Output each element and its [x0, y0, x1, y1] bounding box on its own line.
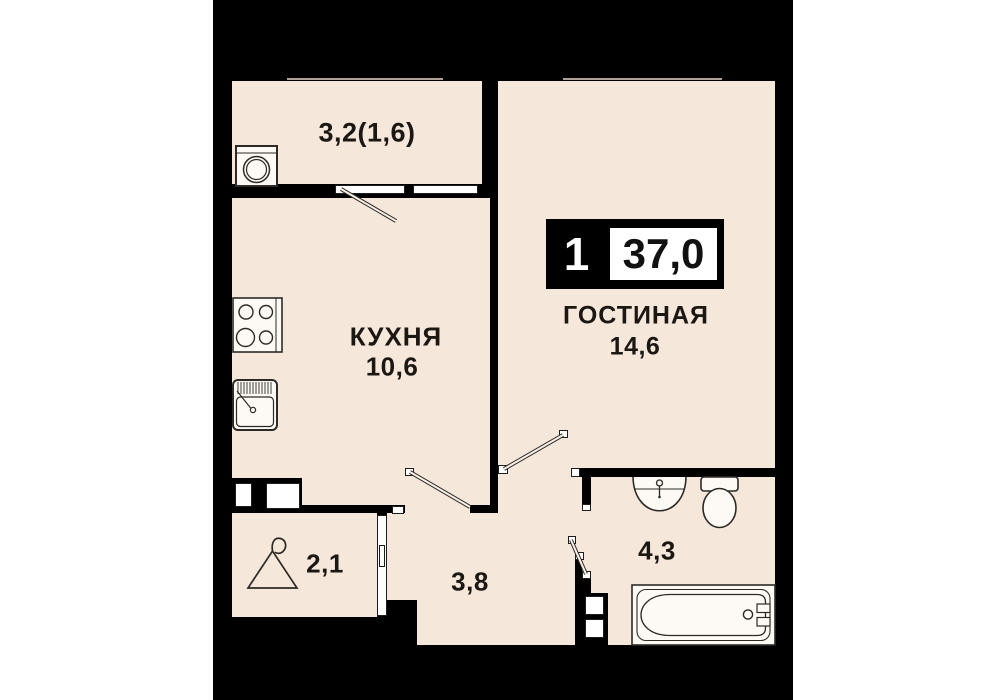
hallway-floor	[232, 513, 377, 617]
kitchen-name: КУХНЯ	[350, 322, 443, 353]
hallway-door-handle	[379, 545, 385, 567]
kitchen-floor-lower	[302, 478, 490, 505]
kitchen-door-opening	[405, 505, 470, 513]
balcony-glazing-left	[335, 185, 405, 194]
column-top-cap	[575, 552, 584, 560]
corridor-step-wall	[387, 600, 417, 645]
living-door-end-cap	[559, 430, 568, 438]
bath-wall-mid-cap	[582, 504, 591, 511]
badge-rooms-count: 1	[564, 227, 590, 281]
bath-door-end-cap	[568, 536, 576, 544]
hallway-niche-large	[266, 483, 300, 509]
hallway-area: 2,1	[306, 549, 344, 580]
corridor-area: 3,8	[451, 567, 489, 598]
kitchen-wall-end-cap	[392, 506, 404, 514]
badge-total-area: 37,0	[623, 230, 705, 278]
living-door-hinge-cap	[498, 465, 508, 474]
area-badge: 1 37,0	[546, 219, 724, 289]
living-window-icon	[563, 78, 722, 80]
bath-door-hinge-cap	[582, 571, 591, 579]
living-corridor-passage	[498, 468, 575, 513]
hallway-niche-small	[235, 483, 252, 507]
bathroom-area: 4,3	[638, 536, 676, 567]
shaft-niche-top	[585, 596, 604, 615]
floor-plan: 1 37,0 3,2(1,6) КУХНЯ 10,6 ГОСТИНАЯ 14,6…	[0, 0, 1006, 700]
bath-wall-end-cap	[571, 468, 580, 477]
balcony-glazing-right	[413, 185, 478, 194]
shaft-niche-bottom	[585, 619, 604, 638]
bathroom-door-opening	[582, 511, 591, 572]
balcony-window-icon	[287, 78, 443, 80]
balcony-label: 3,2(1,6)	[318, 118, 415, 149]
kitchen-area: 10,6	[366, 352, 419, 383]
kitchen-door-end-cap	[405, 468, 414, 476]
living-name: ГОСТИНАЯ	[563, 302, 709, 331]
bathroom-floor	[591, 477, 775, 645]
balcony-window-mullion	[406, 186, 412, 197]
bathroom-left-strip	[575, 477, 582, 552]
living-area: 14,6	[610, 333, 661, 362]
